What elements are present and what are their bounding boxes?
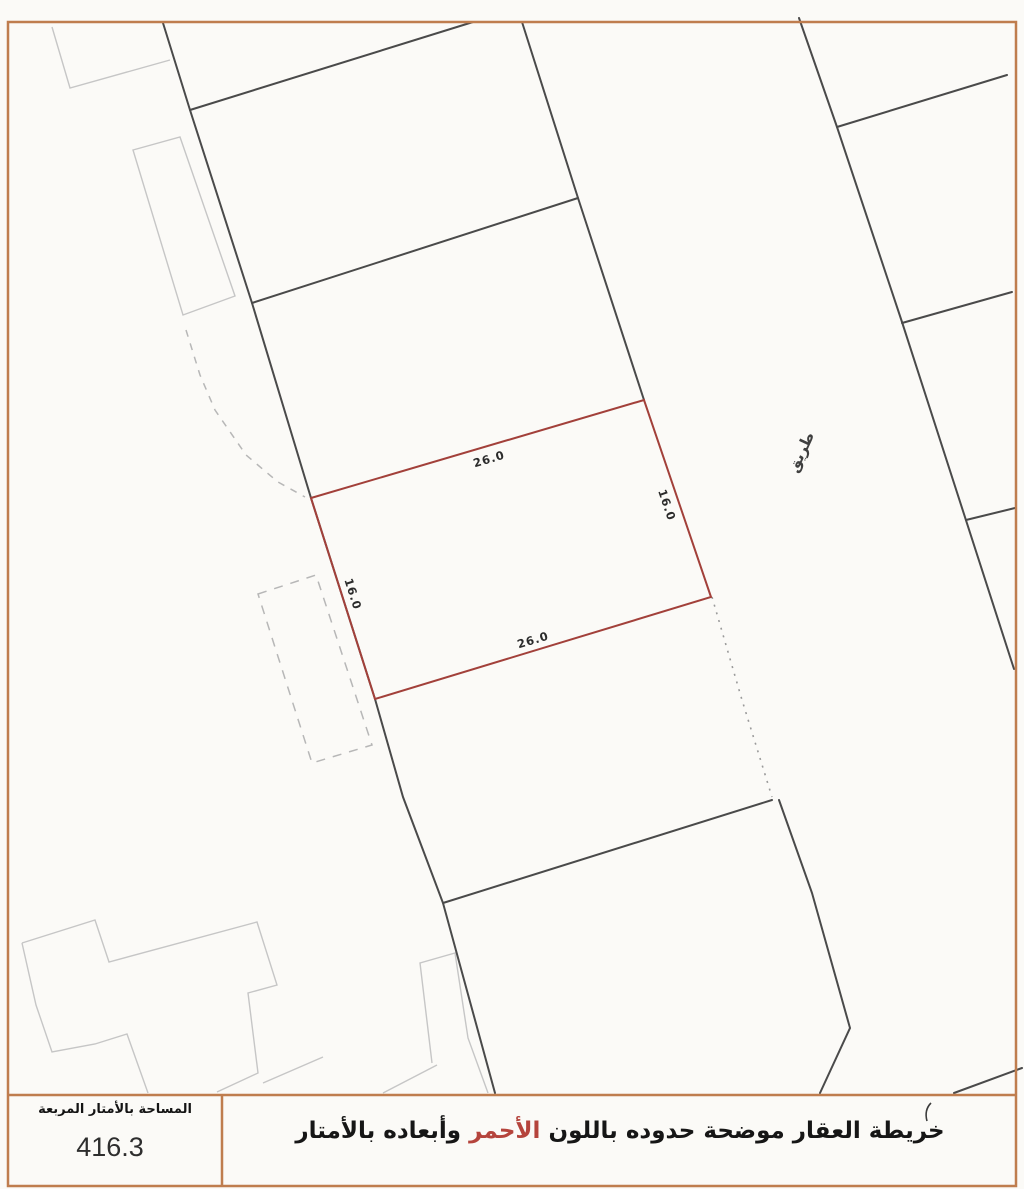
map-caption: خريطة العقار موضحة حدوده باللون الأحمر و… (232, 1118, 1008, 1144)
building-footprint (52, 27, 170, 88)
block-corner-boundary (779, 800, 850, 1093)
building-footprint (420, 953, 488, 1093)
page-border (8, 22, 1016, 1186)
survey-map-canvas (0, 0, 1024, 1189)
parcel-division-line (966, 508, 1015, 520)
red-parcel-outline (311, 400, 711, 699)
block-boundary-west (163, 23, 495, 1093)
building-footprint (263, 1057, 323, 1083)
dotted-parcel-edge (712, 597, 772, 797)
caption-text-before: خريطة العقار موضحة حدوده باللون (548, 1118, 944, 1144)
building-footprint (383, 1065, 437, 1093)
cadastral-map-page: 26.0 26.0 16.0 16.0 طريق المساحة بالأمتا… (0, 0, 1024, 1189)
block-boundaries (163, 18, 1022, 1093)
building-footprint (22, 943, 148, 1093)
building-footprint (133, 137, 235, 315)
caption-text-after: وأبعاده بالأمتار (295, 1118, 461, 1144)
parcel-division-line (902, 292, 1012, 323)
page-frame (8, 22, 1016, 1186)
parcel-division-line (190, 22, 473, 110)
road-edge-line (799, 18, 1014, 669)
area-value: 416.3 (10, 1132, 210, 1163)
parcel-division-line (837, 75, 1007, 127)
parcel-division-line (954, 1068, 1022, 1093)
parcel-division-line (443, 800, 772, 903)
caption-red-word: الأحمر (469, 1118, 540, 1144)
building-footprint (22, 920, 277, 1092)
area-units-label: المساحة بالأمتار المربعة (14, 1102, 216, 1117)
building-footprints (22, 27, 488, 1093)
parcel-division-line (252, 198, 578, 303)
dashed-boundary-curve (186, 330, 305, 497)
